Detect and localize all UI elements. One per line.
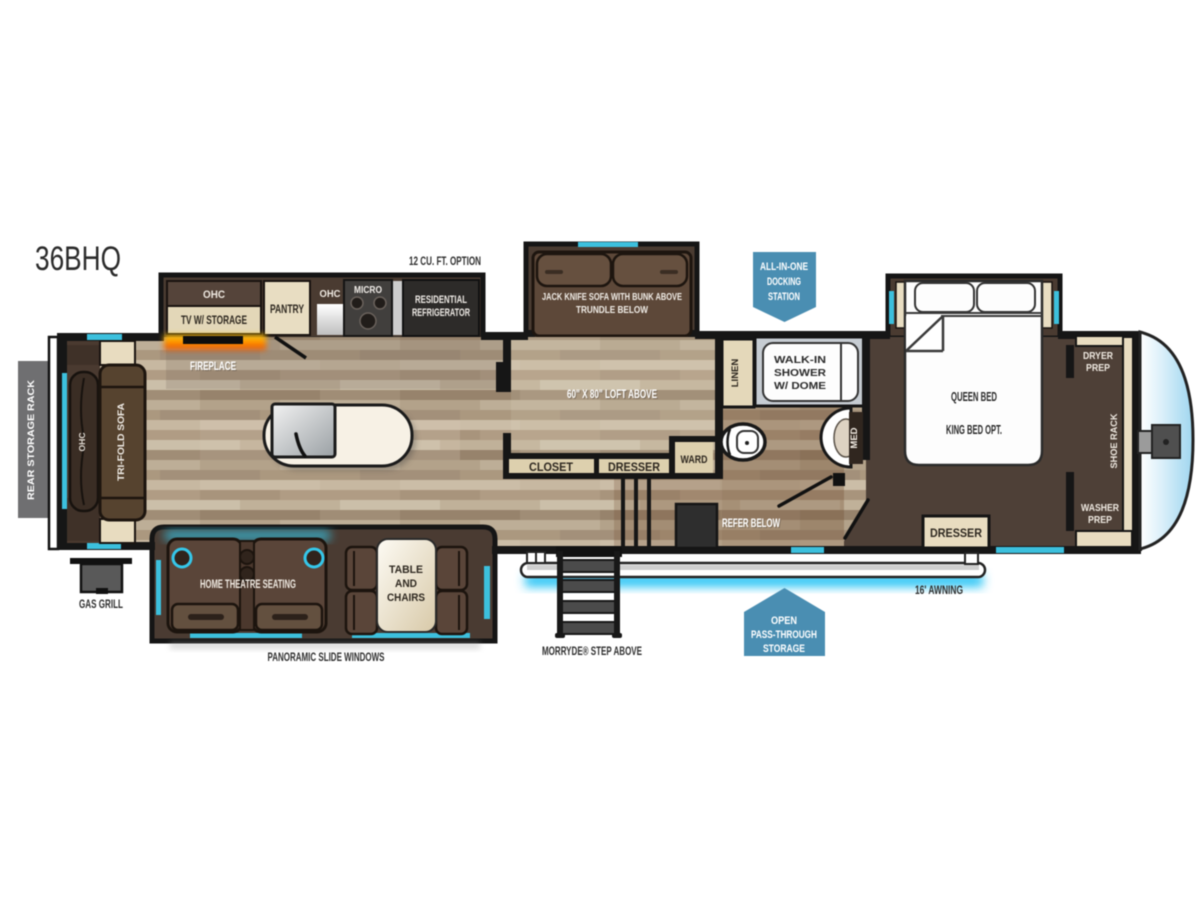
- svg-text:STORAGE: STORAGE: [763, 643, 805, 655]
- svg-text:DRESSER: DRESSER: [930, 528, 983, 540]
- svg-text:DOCKING: DOCKING: [767, 276, 801, 288]
- svg-text:36BHQ: 36BHQ: [35, 240, 121, 278]
- svg-text:W/ DOME: W/ DOME: [774, 380, 826, 392]
- svg-text:WARD: WARD: [681, 454, 708, 466]
- svg-text:TABLE: TABLE: [389, 564, 423, 576]
- svg-text:KING BED OPT.: KING BED OPT.: [946, 423, 1002, 437]
- svg-text:PREP: PREP: [1088, 514, 1112, 526]
- svg-text:12 CU. FT. OPTION: 12 CU. FT. OPTION: [409, 254, 481, 268]
- svg-text:PANTRY: PANTRY: [270, 304, 304, 316]
- svg-text:OHC: OHC: [78, 432, 87, 451]
- svg-text:HOME THEATRE SEATING: HOME THEATRE SEATING: [200, 577, 296, 591]
- svg-text:REFER BELOW: REFER BELOW: [722, 518, 780, 530]
- svg-text:OHC: OHC: [203, 289, 225, 301]
- svg-text:MICRO: MICRO: [354, 284, 382, 296]
- svg-text:TRUNDLE BELOW: TRUNDLE BELOW: [576, 304, 648, 316]
- svg-text:STATION: STATION: [768, 291, 800, 303]
- svg-text:RESIDENTIAL: RESIDENTIAL: [415, 294, 467, 306]
- svg-text:AND: AND: [395, 578, 417, 590]
- svg-text:CHAIRS: CHAIRS: [387, 592, 425, 604]
- svg-text:16' AWNING: 16' AWNING: [915, 583, 963, 597]
- svg-text:OHC: OHC: [320, 288, 341, 300]
- svg-text:FIREPLACE: FIREPLACE: [190, 361, 236, 373]
- svg-text:WASHER: WASHER: [1081, 502, 1119, 514]
- svg-text:60" X 80" LOFT ABOVE: 60" X 80" LOFT ABOVE: [567, 387, 657, 401]
- svg-text:OPEN: OPEN: [771, 615, 797, 627]
- svg-text:DRYER: DRYER: [1083, 350, 1113, 362]
- svg-text:LINEN: LINEN: [730, 359, 741, 388]
- svg-text:PASS-THROUGH: PASS-THROUGH: [751, 629, 817, 641]
- svg-text:TRI-FOLD SOFA: TRI-FOLD SOFA: [116, 402, 126, 481]
- svg-text:GAS GRILL: GAS GRILL: [79, 597, 123, 611]
- svg-text:ALL-IN-ONE: ALL-IN-ONE: [760, 261, 808, 273]
- svg-text:REFRIGERATOR: REFRIGERATOR: [412, 307, 470, 319]
- svg-text:REAR STORAGE RACK: REAR STORAGE RACK: [26, 379, 36, 500]
- svg-text:PANORAMIC SLIDE WINDOWS: PANORAMIC SLIDE WINDOWS: [268, 650, 385, 664]
- svg-text:QUEEN BED: QUEEN BED: [951, 390, 997, 404]
- svg-text:MORRYDE® STEP ABOVE: MORRYDE® STEP ABOVE: [542, 644, 642, 658]
- svg-text:SHOE RACK: SHOE RACK: [1109, 413, 1120, 468]
- svg-text:MED: MED: [849, 427, 860, 448]
- svg-text:CLOSET: CLOSET: [529, 462, 573, 474]
- svg-text:JACK KNIFE SOFA WITH BUNK ABOV: JACK KNIFE SOFA WITH BUNK ABOVE: [542, 291, 682, 303]
- svg-text:PREP: PREP: [1086, 362, 1110, 374]
- svg-text:DRESSER: DRESSER: [608, 462, 661, 474]
- svg-text:SHOWER: SHOWER: [774, 367, 826, 379]
- svg-text:WALK-IN: WALK-IN: [774, 354, 826, 366]
- svg-text:TV W/ STORAGE: TV W/ STORAGE: [181, 315, 247, 327]
